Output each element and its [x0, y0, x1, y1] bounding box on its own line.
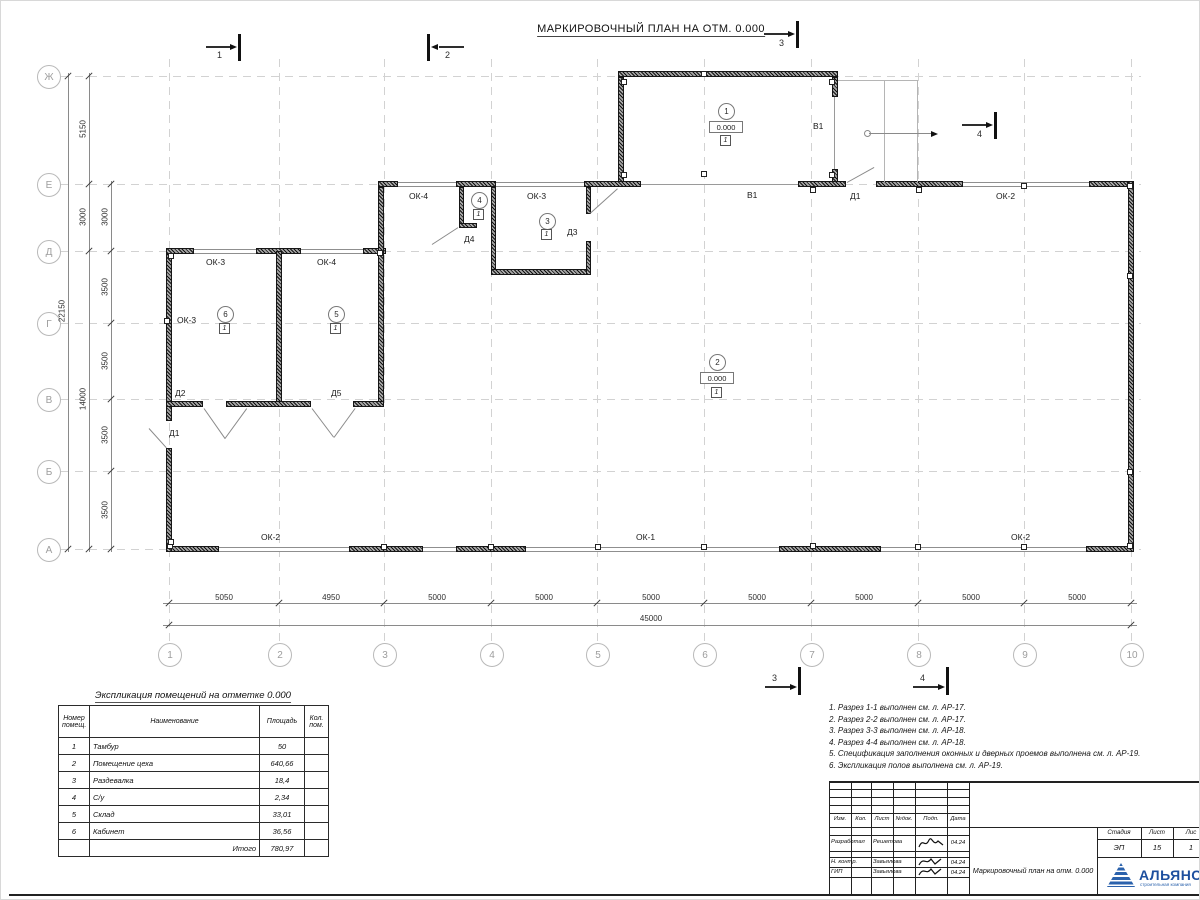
section-label: 1 — [217, 50, 222, 60]
axis-bubble-col: 5 — [586, 643, 610, 667]
cell-name: Раздевалка — [90, 772, 260, 789]
wall-segment — [1128, 181, 1134, 552]
table-row: 4 С/у 2,34 — [59, 789, 329, 806]
tb-date: 04.24 — [951, 870, 966, 876]
column-marker — [381, 544, 387, 550]
window-ok4 — [398, 182, 456, 187]
opening-label: ОК-1 — [636, 532, 655, 542]
axis-bubble-col: 7 — [800, 643, 824, 667]
canopy-edge — [838, 80, 918, 81]
cell-count — [305, 806, 329, 823]
axis-bubble-col: 1 — [158, 643, 182, 667]
wall-segment — [166, 448, 172, 552]
tb-date: 04.24 — [951, 860, 966, 866]
cell-num: 1 — [59, 738, 90, 755]
cell-area: 2,34 — [260, 789, 305, 806]
section-arrow — [788, 31, 795, 37]
partition-wall — [586, 187, 591, 214]
gate-opening-v1 — [641, 184, 798, 185]
company-logo-icon — [1107, 863, 1135, 887]
wall-segment — [798, 181, 846, 187]
room-number-bubble: 3 — [539, 213, 556, 230]
room-elevation: 0.000 — [709, 121, 743, 133]
dim-value: 3500 — [101, 426, 110, 444]
section-mark-bar — [798, 667, 801, 695]
wall-segment — [584, 181, 641, 187]
door-leaf-d5 — [312, 408, 334, 437]
opening-label: ОК-2 — [996, 191, 1015, 201]
opening-label: Д5 — [331, 388, 341, 398]
explication-table: Номер помещ. Наименование Площадь Кол. п… — [58, 705, 329, 857]
section-arrow — [938, 684, 945, 690]
cell-name: Склад — [90, 806, 260, 823]
column-marker — [810, 543, 816, 549]
column-marker — [915, 544, 921, 550]
ramp-arrow-start — [864, 130, 871, 137]
partition-wall — [353, 401, 384, 407]
dim-value: 4950 — [322, 593, 340, 602]
cell-count — [305, 789, 329, 806]
tb-doc-title: Маркировочный план на отм. 0.000 — [973, 866, 1093, 875]
tb-role: ГИП — [831, 869, 843, 875]
cell-area: 33,01 — [260, 806, 305, 823]
cell-name: Помещение цеха — [90, 755, 260, 772]
opening-label: ОК-4 — [317, 257, 336, 267]
wall-segment — [618, 77, 624, 184]
note-line: 1. Разрез 1-1 выполнен см. л. АР-17. — [829, 702, 1140, 714]
axis-bubble-col: 2 — [268, 643, 292, 667]
col-header-count: Кол. пом. — [305, 706, 329, 738]
dim-value: 5000 — [748, 593, 766, 602]
section-label: 4 — [920, 673, 925, 683]
room-number-bubble: 5 — [328, 306, 345, 323]
axis-line-col — [811, 59, 812, 641]
section-mark-line — [913, 686, 939, 688]
column-marker — [701, 171, 707, 177]
ramp-arrow-line — [869, 133, 935, 134]
tb-col-kol: Кол. — [855, 816, 866, 822]
opening-label: Д2 — [175, 388, 185, 398]
axis-line-row — [61, 471, 1141, 472]
axis-line-row — [61, 399, 1141, 400]
window-ok4 — [301, 249, 363, 254]
cell-name: С/у — [90, 789, 260, 806]
column-marker — [829, 79, 835, 85]
dim-line — [111, 181, 112, 552]
cell-count — [305, 772, 329, 789]
column-marker — [595, 544, 601, 550]
column-marker — [1127, 183, 1133, 189]
door-leaf-d5 — [334, 408, 356, 438]
room-number-bubble: 6 — [217, 306, 234, 323]
cell-num: 6 — [59, 823, 90, 840]
dim-line — [163, 625, 1137, 626]
room-number-bubble: 4 — [471, 192, 488, 209]
section-mark-line — [962, 124, 987, 126]
cell-num: 3 — [59, 772, 90, 789]
door-leaf-d1 — [847, 167, 875, 183]
tb-name: Завьялова — [873, 869, 902, 875]
signature — [917, 836, 945, 850]
window-ok3 — [496, 182, 584, 187]
signature — [917, 866, 945, 878]
partition-wall — [586, 241, 591, 275]
dim-value: 3000 — [79, 208, 88, 226]
note-line: 2. Разрез 2-2 выполнен см. л. АР-17. — [829, 714, 1140, 726]
company-subtitle: строительная компания — [1140, 882, 1191, 887]
col-header-name: Наименование — [90, 706, 260, 738]
ramp-arrow-head — [931, 131, 938, 137]
door-leaf-d1-left — [149, 428, 167, 448]
dim-value: 3500 — [101, 352, 110, 370]
tb-sheet-value: 15 — [1153, 843, 1161, 852]
axis-bubble-row: Д — [37, 240, 61, 264]
note-line: 6. Экспликация полов выполнена см. л. АР… — [829, 760, 1140, 772]
cell-name: Тамбур — [90, 738, 260, 755]
opening-label: ОК-3 — [177, 315, 196, 325]
note-line: 3. Разрез 3-3 выполнен см. л. АР-18. — [829, 725, 1140, 737]
axis-line-col — [704, 59, 705, 641]
section-arrow — [230, 44, 237, 50]
tb-date: 04.24 — [951, 840, 966, 846]
floor-type-marker: 1 — [711, 387, 722, 398]
dim-value: 5000 — [428, 593, 446, 602]
table-row: 6 Кабинет 36,56 — [59, 823, 329, 840]
cell-count — [305, 755, 329, 772]
wall-segment — [618, 71, 838, 77]
column-marker — [488, 544, 494, 550]
column-marker — [1021, 183, 1027, 189]
door-leaf-d4 — [432, 227, 459, 245]
dim-value: 3000 — [101, 208, 110, 226]
tb-name: Завьялова — [873, 859, 902, 865]
tb-col-izm: Изм. — [834, 816, 846, 822]
partition-wall — [491, 269, 591, 275]
table-row: 5 Склад 33,01 — [59, 806, 329, 823]
section-arrow — [431, 44, 438, 50]
opening-label: В1 — [747, 190, 757, 200]
title-block: Изм. Кол. Лист №док. Подп. Дата Разработ… — [829, 781, 1200, 894]
notes: 1. Разрез 1-1 выполнен см. л. АР-17. 2. … — [829, 702, 1140, 771]
axis-bubble-col: 9 — [1013, 643, 1037, 667]
window-marker-ok3 — [164, 318, 170, 324]
opening-label: Д3 — [567, 227, 577, 237]
opening-label: ОК-4 — [409, 191, 428, 201]
floor-type-marker: 1 — [330, 323, 341, 334]
column-marker — [916, 187, 922, 193]
section-mark-bar — [427, 34, 430, 61]
sheet-frame — [9, 894, 1200, 896]
col-header-area: Площадь — [260, 706, 305, 738]
section-mark-line — [206, 46, 231, 48]
floor-type-marker: 1 — [473, 209, 484, 220]
cell-num: 4 — [59, 789, 90, 806]
window-ok1 — [526, 547, 779, 552]
cell-name: Кабинет — [90, 823, 260, 840]
axis-bubble-row: А — [37, 538, 61, 562]
cell-area: 50 — [260, 738, 305, 755]
section-label: 3 — [772, 673, 777, 683]
tb-sheets-label: Лис — [1186, 829, 1197, 836]
section-arrow — [790, 684, 797, 690]
column-marker — [168, 253, 174, 259]
dim-value: 3500 — [101, 501, 110, 519]
canopy-edge — [884, 80, 885, 182]
opening-label: Д4 — [464, 234, 474, 244]
wall-segment — [779, 546, 881, 552]
section-label: 2 — [445, 50, 450, 60]
column-marker — [701, 544, 707, 550]
partition-wall — [491, 187, 496, 275]
section-label: 4 — [977, 129, 982, 139]
tb-sheet-label: Лист — [1149, 829, 1165, 836]
dim-value: 5050 — [215, 593, 233, 602]
table-row: 1 Тамбур 50 — [59, 738, 329, 755]
room-elevation: 0.000 — [700, 372, 734, 384]
axis-line-col — [1024, 59, 1025, 641]
section-mark-bar — [796, 21, 799, 48]
axis-bubble-row: Ж — [37, 65, 61, 89]
section-label: 3 — [779, 38, 784, 48]
axis-bubble-col: 8 — [907, 643, 931, 667]
page-title: МАРКИРОВОЧНЫЙ ПЛАН НА ОТМ. 0.000 — [537, 23, 765, 37]
partition-wall — [226, 401, 311, 407]
opening-label: Д1 — [169, 428, 179, 438]
column-marker — [829, 172, 835, 178]
tb-stage-value: ЭП — [1114, 843, 1125, 852]
dim-total: 22150 — [58, 300, 67, 322]
wall-segment — [166, 546, 219, 552]
column-marker — [1127, 469, 1133, 475]
column-marker — [377, 250, 383, 256]
tb-col-list: Лист — [875, 816, 890, 822]
floor-type-marker: 1 — [720, 135, 731, 146]
axis-line-col — [491, 59, 492, 641]
axis-bubble-col: 10 — [1120, 643, 1144, 667]
axis-bubble-row: В — [37, 388, 61, 412]
partition-wall — [276, 251, 282, 407]
room-number-bubble: 2 — [709, 354, 726, 371]
dim-value: 5000 — [1068, 593, 1086, 602]
cell-num — [59, 840, 90, 857]
window-ok2 — [219, 547, 349, 552]
note-line: 5. Спецификация заполнения оконных и две… — [829, 748, 1140, 760]
tb-col-podp: Подп. — [923, 816, 938, 822]
opening-label: ОК-3 — [206, 257, 225, 267]
opening-label: ОК-3 — [527, 191, 546, 201]
opening-label: ОК-2 — [261, 532, 280, 542]
dim-line — [68, 73, 69, 552]
axis-bubble-col: 6 — [693, 643, 717, 667]
opening-label: ОК-2 — [1011, 532, 1030, 542]
cell-num: 5 — [59, 806, 90, 823]
dim-value: 5000 — [962, 593, 980, 602]
column-marker — [1127, 273, 1133, 279]
section-mark-bar — [946, 667, 949, 695]
note-line: 4. Разрез 4-4 выполнен см. л. АР-18. — [829, 737, 1140, 749]
axis-line-col — [597, 59, 598, 641]
dim-value: 5000 — [535, 593, 553, 602]
col-header-num: Номер помещ. — [59, 706, 90, 738]
total-value: 780,97 — [260, 840, 305, 857]
window-ok3 — [194, 249, 256, 254]
table-total-row: Итого 780,97 — [59, 840, 329, 857]
section-mark-line — [765, 686, 791, 688]
column-marker — [621, 79, 627, 85]
section-mark-bar — [994, 112, 997, 139]
cell-area: 18,4 — [260, 772, 305, 789]
partition-wall — [166, 401, 203, 407]
axis-line-col — [384, 59, 385, 641]
window-ok2 — [881, 547, 1086, 552]
column-marker — [810, 187, 816, 193]
floor-type-marker: 1 — [219, 323, 230, 334]
window-strip — [423, 547, 456, 552]
axis-bubble-col: 4 — [480, 643, 504, 667]
tb-stage-label: Стадия — [1107, 829, 1130, 836]
column-marker — [1021, 544, 1027, 550]
tb-col-data: Дата — [950, 816, 965, 822]
room-number-bubble: 1 — [718, 103, 735, 120]
dim-value: 3500 — [101, 278, 110, 296]
tb-sheets-value: 1 — [1189, 843, 1193, 852]
axis-line-col — [918, 59, 919, 641]
column-marker — [701, 71, 707, 77]
partition-wall — [378, 187, 384, 407]
tb-col-ndok: №док. — [895, 816, 912, 822]
partition-wall — [459, 187, 464, 227]
opening-label: Д1 — [850, 191, 860, 201]
company-name: АЛЬЯНС — [1139, 867, 1200, 883]
cell-count — [305, 840, 329, 857]
drawing-sheet: МАРКИРОВОЧНЫЙ ПЛАН НА ОТМ. 0.000 Ж Е Д Г… — [0, 0, 1200, 900]
door-leaf-d2 — [204, 408, 226, 439]
section-mark-line — [764, 33, 789, 35]
dim-value: 5000 — [855, 593, 873, 602]
dim-value: 14000 — [79, 388, 88, 410]
tb-role: Н. контр. — [831, 859, 857, 865]
tb-name: Решетова — [873, 839, 902, 845]
partition-wall — [459, 223, 477, 228]
cell-num: 2 — [59, 755, 90, 772]
opening-label: В1 — [813, 121, 823, 131]
total-label: Итого — [90, 840, 260, 857]
cell-area: 640,66 — [260, 755, 305, 772]
axis-line-row — [61, 76, 1141, 77]
dim-line — [163, 603, 1137, 604]
explication-title: Экспликация помещений на отметке 0.000 — [95, 690, 291, 703]
table-row: 3 Раздевалка 18,4 — [59, 772, 329, 789]
section-arrow — [986, 122, 993, 128]
gate-opening-v1 — [834, 97, 835, 169]
dim-line — [89, 73, 90, 552]
section-mark-line — [439, 46, 464, 48]
wall-segment — [166, 251, 172, 421]
dim-total: 45000 — [640, 614, 662, 623]
column-marker — [621, 172, 627, 178]
cell-count — [305, 738, 329, 755]
cell-count — [305, 823, 329, 840]
canopy-edge — [917, 80, 918, 182]
door-leaf-d3 — [590, 188, 618, 214]
dim-value: 5150 — [79, 120, 88, 138]
column-marker — [168, 539, 174, 545]
axis-bubble-row: Б — [37, 460, 61, 484]
floor-type-marker: 1 — [541, 229, 552, 240]
axis-bubble-col: 3 — [373, 643, 397, 667]
door-leaf-d2 — [225, 408, 248, 439]
column-marker — [1127, 543, 1133, 549]
section-mark-bar — [238, 34, 241, 61]
table-row: 2 Помещение цеха 640,66 — [59, 755, 329, 772]
dim-value: 5000 — [642, 593, 660, 602]
axis-bubble-row: Е — [37, 173, 61, 197]
tb-role: Разработал — [831, 839, 865, 845]
cell-area: 36,56 — [260, 823, 305, 840]
